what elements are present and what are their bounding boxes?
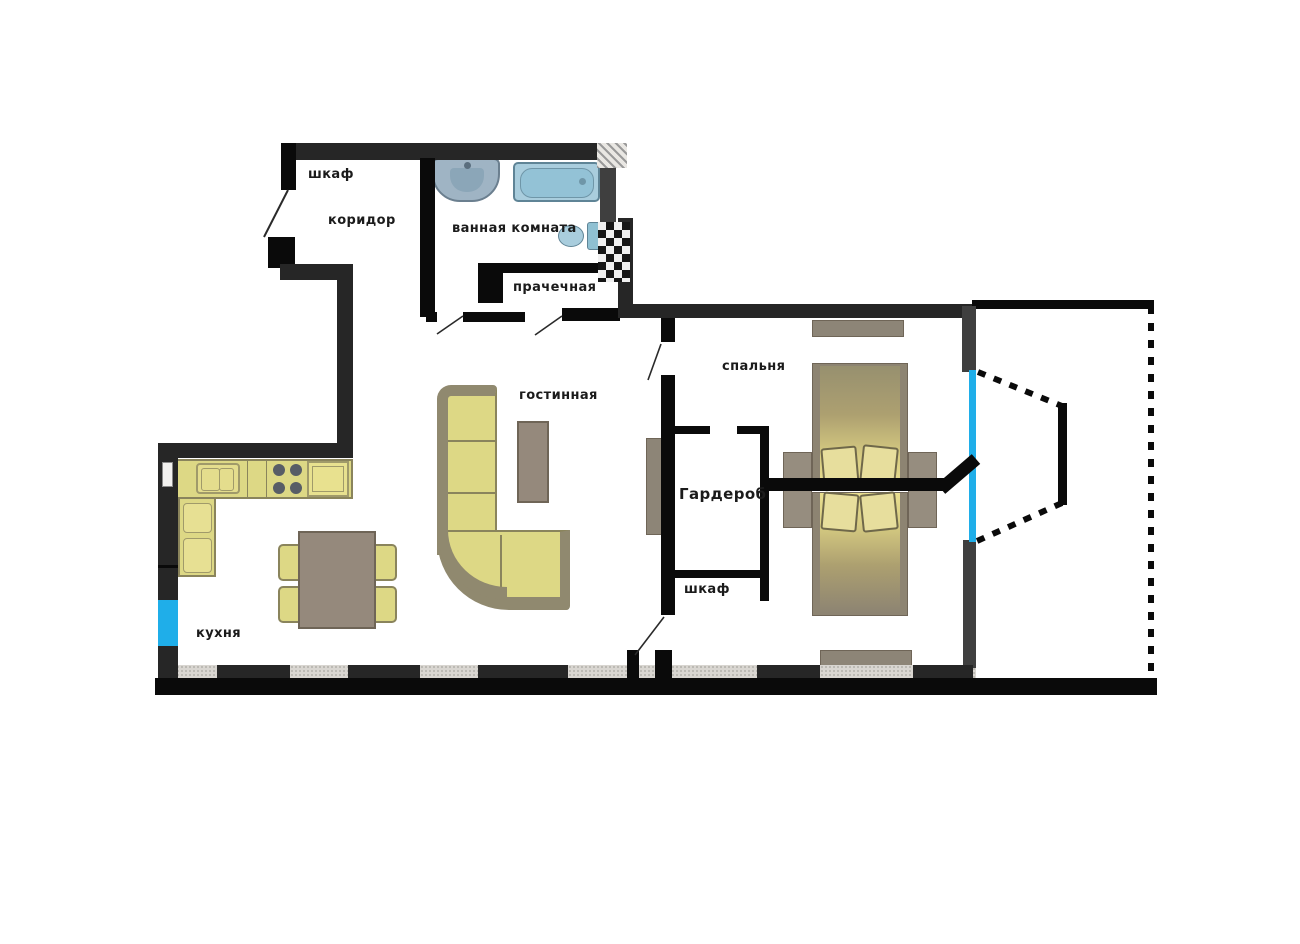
room-label-entry-closet: шкаф <box>308 167 354 182</box>
room-label-bedroom: спальня <box>722 359 785 374</box>
shaft-hatch <box>597 143 627 168</box>
floor-plan: шкаф коридор ванная комната прачечная го… <box>0 0 1300 944</box>
door-swing <box>535 316 562 335</box>
room-label-bathroom: ванная комната <box>452 221 577 236</box>
entry-door-swing <box>264 190 288 237</box>
wall <box>283 143 610 160</box>
window-sill <box>568 665 628 679</box>
window <box>158 600 178 646</box>
stove-icon <box>270 461 305 497</box>
door-swing <box>648 344 661 380</box>
room-label-wardrobe: Гардероб <box>679 485 766 503</box>
wall <box>661 375 675 615</box>
door-swing <box>437 316 463 334</box>
wall <box>655 650 672 678</box>
wall <box>962 306 976 372</box>
wall <box>217 665 290 679</box>
wall <box>618 304 975 318</box>
wall <box>562 308 620 321</box>
wall <box>463 312 525 322</box>
window-sill <box>420 665 478 679</box>
dining-table-icon <box>298 531 376 629</box>
room-label-laundry: прачечная <box>513 280 596 295</box>
wall <box>337 264 353 458</box>
wall <box>668 570 760 578</box>
wall <box>348 665 420 679</box>
wall <box>420 158 435 317</box>
wall <box>757 665 820 679</box>
wall <box>763 478 948 491</box>
exterior-wall <box>155 678 1157 695</box>
bathroom-sink-icon <box>432 158 500 202</box>
room-label-living-room: гостинная <box>519 388 598 403</box>
kitchen-sink-icon <box>196 463 240 494</box>
wall <box>627 650 639 679</box>
balcony-door <box>1058 403 1067 505</box>
wall <box>913 665 973 679</box>
wall <box>281 143 296 190</box>
room-label-kitchen: кухня <box>196 626 241 641</box>
window-sill <box>290 665 348 679</box>
dresser-icon <box>812 320 904 337</box>
wall <box>478 665 568 679</box>
wall-tick <box>158 565 178 568</box>
wall <box>668 426 710 434</box>
window-sill <box>820 665 913 679</box>
coffee-table-icon <box>517 421 549 503</box>
window <box>969 370 976 542</box>
wall <box>600 160 616 222</box>
room-label-corridor: коридор <box>328 213 396 228</box>
wall <box>760 426 769 601</box>
balcony-wall <box>972 300 1154 309</box>
room-label-closet: шкаф <box>684 582 730 597</box>
wall-niche <box>162 462 173 487</box>
washer-block-icon <box>478 263 503 303</box>
shaft-checker <box>598 222 630 282</box>
wall <box>158 443 353 458</box>
wall <box>426 312 437 322</box>
bathtub-icon <box>513 162 600 202</box>
wall <box>963 540 976 668</box>
balcony-door-dash <box>977 503 1062 541</box>
balcony-door-dash <box>978 372 1062 406</box>
kitchen-appliance-icon <box>307 461 349 497</box>
wall <box>661 318 675 342</box>
